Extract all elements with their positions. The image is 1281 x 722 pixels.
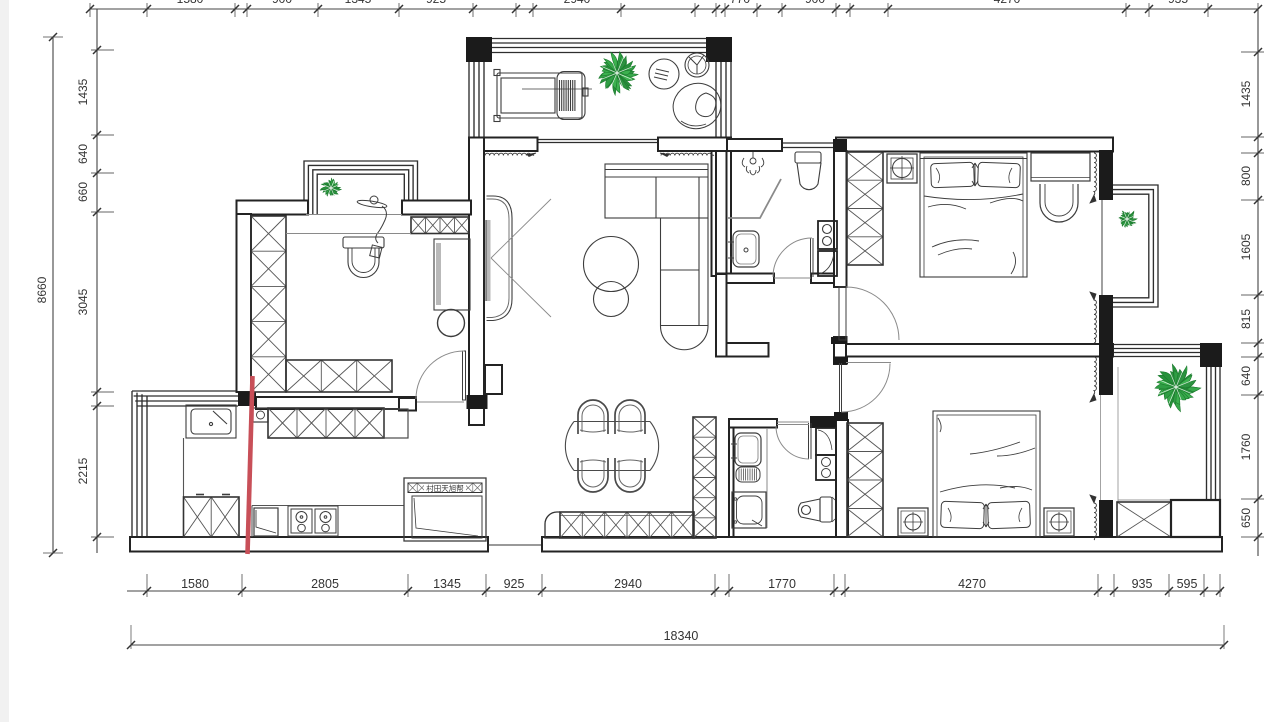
svg-text:18340: 18340 [664,629,699,643]
svg-text:900: 900 [272,0,292,6]
svg-text:2940: 2940 [614,577,642,591]
svg-text:8660: 8660 [35,276,49,303]
svg-text:925: 925 [504,577,525,591]
svg-text:1770: 1770 [768,577,796,591]
svg-text:650: 650 [1239,508,1253,528]
svg-text:1605: 1605 [1239,233,1253,260]
svg-text:900: 900 [805,0,825,6]
svg-text:1580: 1580 [177,0,204,6]
svg-text:770: 770 [730,0,750,6]
svg-text:935: 935 [1132,577,1153,591]
svg-text:925: 925 [426,0,446,6]
svg-text:1435: 1435 [1239,80,1253,107]
svg-text:935: 935 [1168,0,1188,6]
svg-text:2215: 2215 [76,457,90,484]
svg-text:595: 595 [1177,577,1198,591]
svg-text:4270: 4270 [994,0,1021,6]
svg-text:村田天旭帮: 村田天旭帮 [426,483,464,493]
svg-text:3045: 3045 [76,288,90,315]
svg-text:1580: 1580 [181,577,209,591]
svg-text:815: 815 [1239,309,1253,329]
svg-text:1760: 1760 [1239,433,1253,460]
svg-text:2805: 2805 [311,577,339,591]
svg-text:1345: 1345 [433,577,461,591]
svg-text:640: 640 [76,144,90,164]
svg-text:660: 660 [76,182,90,202]
svg-text:2940: 2940 [564,0,591,6]
svg-text:640: 640 [1239,366,1253,386]
svg-text:1435: 1435 [76,78,90,105]
svg-text:1345: 1345 [345,0,372,6]
svg-text:4270: 4270 [958,577,986,591]
svg-text:800: 800 [1239,166,1253,186]
